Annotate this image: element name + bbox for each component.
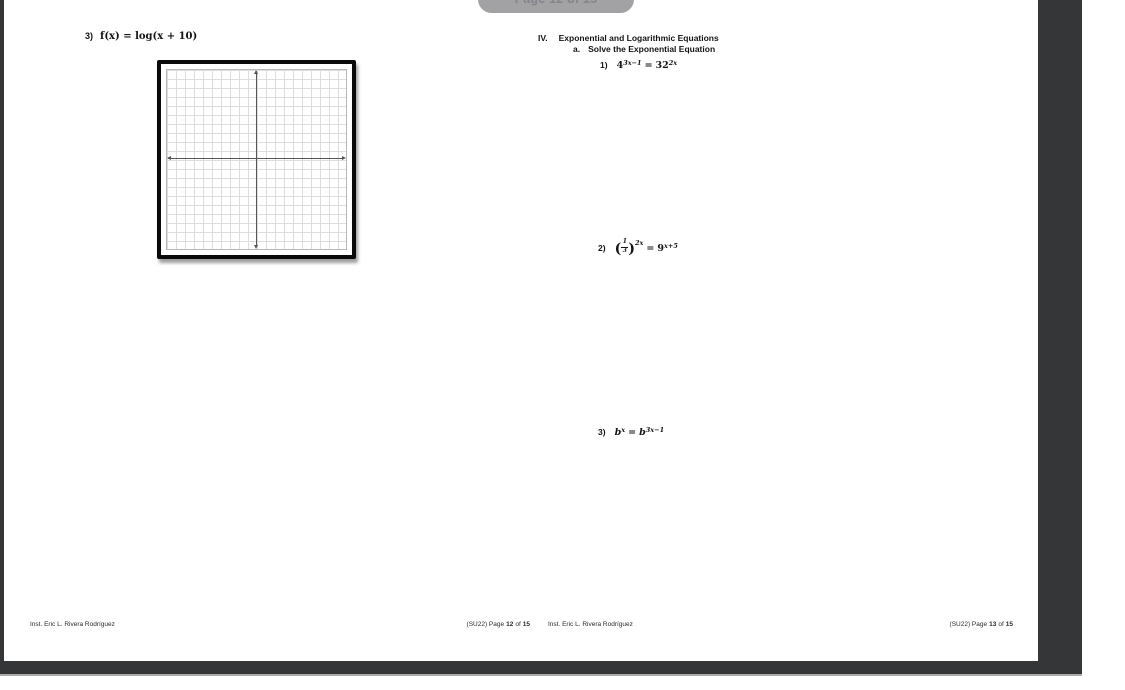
- problem-number: 3): [85, 31, 93, 41]
- coordinate-grid: [166, 69, 347, 250]
- problem-3-exponential: 3)bx=b3x−1: [598, 422, 664, 440]
- x-axis-arrow-right-icon: [342, 156, 346, 160]
- footer-author: Inst. Eric L. Rivera Rodríguez: [548, 621, 633, 628]
- footer-page-number: 12: [506, 621, 513, 628]
- footer-author: Inst. Eric L. Rivera Rodríguez: [30, 621, 115, 628]
- subsection-label: a.: [573, 44, 580, 54]
- section-numeral: IV.: [538, 33, 548, 43]
- document-page-right: IV.Exponential and Logarithmic Equations…: [538, 0, 1038, 661]
- y-axis-arrow-down-icon: [254, 245, 258, 249]
- log-formula: f(x) = log(x + 10): [100, 31, 197, 42]
- subsection-title: Solve the Exponential Equation: [588, 44, 715, 54]
- section-title: Exponential and Logarithmic Equations: [559, 33, 719, 43]
- x-axis-arrow-left-icon: [167, 156, 171, 160]
- page-spread: 3)f(x) = log(x + 10) Inst. Eric L. River…: [4, 0, 1038, 661]
- footer-page-info: (SU22) Page13of15: [950, 621, 1013, 628]
- x-axis-line: [168, 158, 343, 159]
- coordinate-grid-figure: [157, 60, 356, 259]
- page-indicator-badge: Page 12 of 15: [478, 0, 634, 13]
- pdf-viewer-window: 3)f(x) = log(x + 10) Inst. Eric L. River…: [0, 0, 1082, 676]
- footer-page-number: 13: [989, 621, 996, 628]
- page-indicator-label: Page 12 of 15: [515, 0, 598, 6]
- problem-log-function: 3)f(x) = log(x + 10): [85, 31, 197, 42]
- footer-page-info: (SU22) Page12of15: [467, 621, 530, 628]
- problem-1-exponential: 1)43x−1=322x: [600, 55, 677, 73]
- problem-number: 3): [598, 427, 606, 437]
- footer-page-total: 15: [1006, 621, 1013, 628]
- problem-number: 2): [598, 243, 606, 253]
- problem-2-exponential: 2)(13)2x=9x+5: [598, 238, 678, 257]
- problem-number: 1): [600, 60, 608, 70]
- document-page-left: 3)f(x) = log(x + 10) Inst. Eric L. River…: [4, 0, 538, 661]
- y-axis-arrow-up-icon: [254, 70, 258, 74]
- footer-page-total: 15: [523, 621, 530, 628]
- subsection-header: a.Solve the Exponential Equation: [573, 44, 715, 54]
- section-header: IV.Exponential and Logarithmic Equations: [538, 33, 719, 43]
